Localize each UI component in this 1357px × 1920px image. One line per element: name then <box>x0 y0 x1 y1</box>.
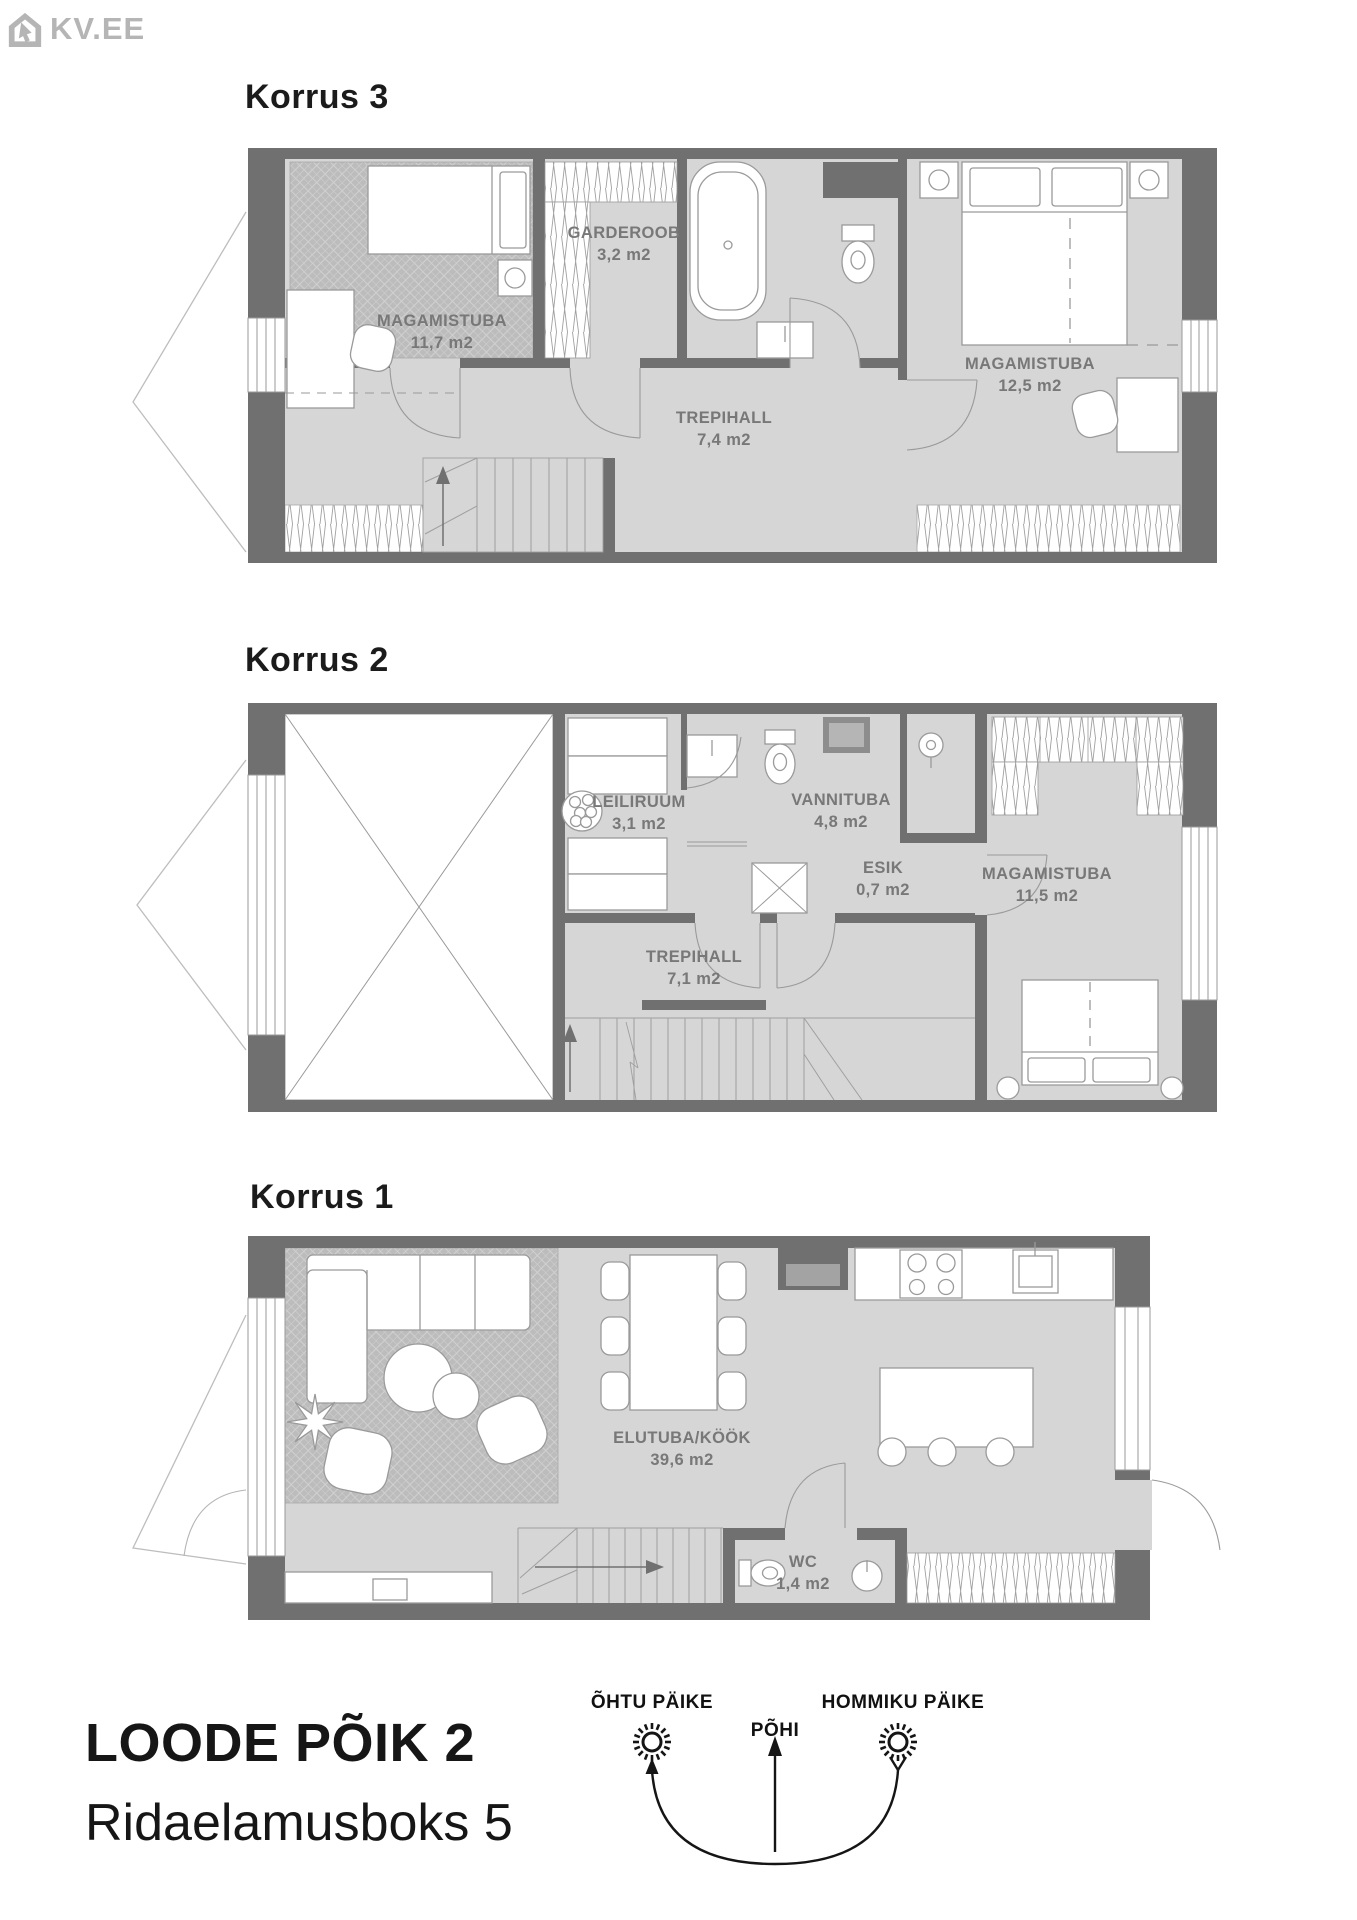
wardrobe-hatch <box>992 717 1183 762</box>
bathroom-vanity <box>757 322 813 358</box>
shaft-niche <box>823 162 900 198</box>
kitchen-sink <box>1013 1242 1058 1293</box>
north-arrow <box>768 1736 782 1852</box>
stove-icon <box>900 1250 962 1298</box>
address-line-2: Ridaelamusboks 5 <box>85 1793 513 1853</box>
tv-console <box>285 1572 492 1603</box>
void-room <box>285 714 553 1100</box>
bed-double <box>1022 980 1158 1085</box>
bed-single <box>368 166 530 254</box>
room-label-leiliruum: LEILIRUUM3,1 m2 <box>592 791 685 835</box>
title-korrus-3: Korrus 3 <box>245 78 389 117</box>
entry-closet-hatch <box>907 1553 1115 1603</box>
wardrobe-hatch <box>1137 762 1183 815</box>
compass-diagram <box>580 1680 1000 1890</box>
dining-table <box>601 1255 746 1410</box>
room-label-elutuba-kook: ELUTUBA/KÖÖK39,6 m2 <box>613 1427 751 1471</box>
stair-landing-edge <box>642 1000 766 1010</box>
room-label-magamistuba-125: MAGAMISTUBA12,5 m2 <box>965 353 1095 397</box>
terrace-outline <box>133 212 246 552</box>
deck-left <box>285 505 423 552</box>
sun-icon <box>879 1723 917 1761</box>
terrace-outline <box>133 1315 246 1564</box>
toilet-icon <box>765 730 795 784</box>
bathroom-vanity <box>687 735 737 777</box>
shaft-inner <box>786 1264 840 1286</box>
terrace-door-arc <box>184 1490 246 1556</box>
room-label-esik: ESIK0,7 m2 <box>856 857 910 901</box>
wardrobe-hatch <box>992 762 1038 815</box>
room-label-vannituba: VANNITUBA4,8 m2 <box>791 789 891 833</box>
entry-threshold <box>1115 1480 1152 1550</box>
room-label-trepihall-3: TREPIHALL7,4 m2 <box>676 407 772 451</box>
kitchen-counter <box>855 1248 1113 1300</box>
title-korrus-2: Korrus 2 <box>245 641 389 680</box>
house-icon <box>6 10 44 48</box>
deck-right <box>917 505 1180 552</box>
washing-machine <box>823 717 870 753</box>
sun-icon <box>633 1723 671 1761</box>
toilet-icon <box>842 225 874 283</box>
logo-text: KV.EE <box>50 11 145 47</box>
bathtub-icon <box>690 162 766 320</box>
room-label-trepihall-2: TREPIHALL7,1 m2 <box>646 946 742 990</box>
floorplan-page: KV.EE Korrus 3 Korrus 2 Korrus 1 <box>0 0 1357 1920</box>
room-label-magamistuba-117: MAGAMISTUBA11,7 m2 <box>377 310 507 354</box>
shower-tray <box>752 863 807 913</box>
title-korrus-1: Korrus 1 <box>250 1178 394 1217</box>
kv-ee-logo: KV.EE <box>6 10 145 48</box>
kitchen-island <box>878 1368 1033 1466</box>
room-label-magamistuba-115: MAGAMISTUBA11,5 m2 <box>982 863 1112 907</box>
wardrobe-hatch <box>545 162 677 202</box>
nightstand <box>498 260 532 296</box>
address-line-1: LOODE PÕIK 2 <box>85 1712 475 1774</box>
room-label-wc: WC1,4 m2 <box>776 1551 830 1595</box>
wc-sink <box>852 1560 882 1591</box>
room-label-garderoob: GARDEROOB3,2 m2 <box>568 222 681 266</box>
terrace-outline <box>137 760 246 1050</box>
